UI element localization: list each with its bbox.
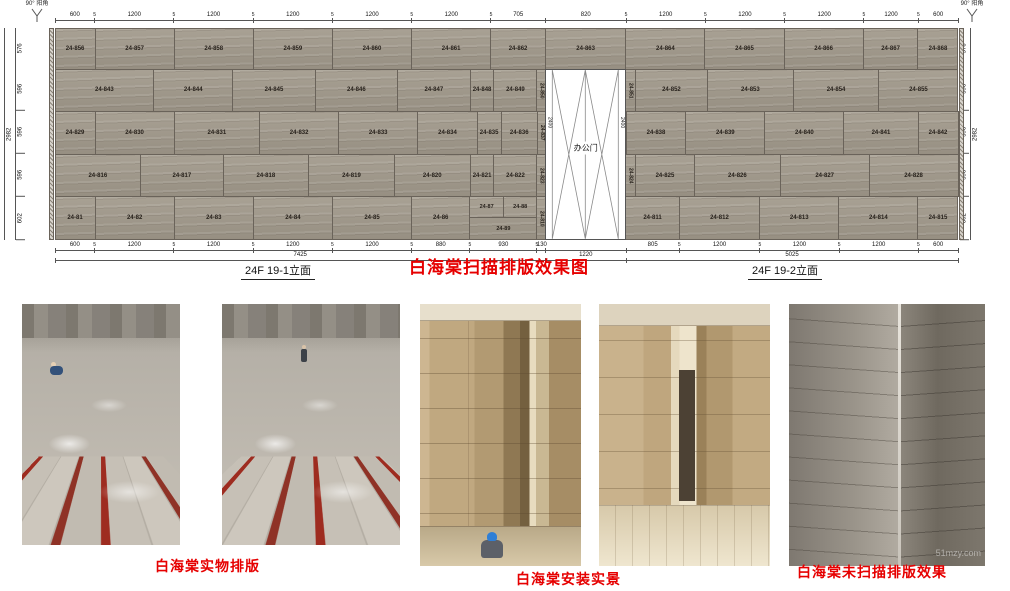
door-frame-icon xyxy=(546,70,625,239)
stone-panel: 24-867 xyxy=(863,28,919,70)
stone-panel: 24-846 xyxy=(315,69,398,113)
dimension-label: 1200 xyxy=(95,11,174,20)
stone-panel: 24-811 xyxy=(625,196,679,240)
stone-panel: 24-860 xyxy=(332,28,412,70)
top-dim-row: 6005120051200512005120051200570582051200… xyxy=(55,11,958,21)
dimension-label xyxy=(545,241,626,250)
dimension-label: 1200 xyxy=(785,11,864,20)
stone-panel: 24-840 xyxy=(764,111,844,155)
dimension-label: 880 xyxy=(412,241,470,250)
stone-panel: 24-819 xyxy=(308,154,395,198)
stone-panel: 24-817 xyxy=(140,154,223,198)
stone-panel: 24-832 xyxy=(259,111,339,155)
dimension-label: 1200 xyxy=(174,11,253,20)
caption-unscanned-effect: 白海棠未扫描排版效果 xyxy=(797,562,947,582)
photo-install-corridor-2 xyxy=(599,304,770,566)
stone-panel: 24-81 xyxy=(55,196,96,240)
page-title: 白海棠扫描排版效果图 xyxy=(409,253,589,278)
stone-panel: 24-848 xyxy=(470,69,495,113)
stone-panel: 24-842 xyxy=(918,111,959,155)
stone-panel: 24-857 xyxy=(95,28,175,70)
stone-panel: 24-865 xyxy=(704,28,784,70)
stone-panel: 24-854 xyxy=(793,69,880,113)
stone-panel: 24-813 xyxy=(759,196,839,240)
ceiling xyxy=(420,304,581,321)
floor-glare xyxy=(22,304,180,545)
stone-panel: 24-843 xyxy=(55,69,155,113)
dimension-label: 596 xyxy=(16,154,25,197)
stone-panel: 24-831 xyxy=(174,111,261,155)
dimension-label: 1200 xyxy=(332,11,411,20)
stone-panel: 24-839 xyxy=(685,111,765,155)
photo-unscanned-corner-wall: 51mzy.com xyxy=(789,304,985,566)
corner-return-hatch-right xyxy=(959,28,964,240)
dimension-label: 1200 xyxy=(705,11,784,20)
dimension-label: 1200 xyxy=(626,11,705,20)
stone-panel: 24-822 xyxy=(493,154,537,198)
stone-panel: 24-816 xyxy=(55,154,142,198)
corner-mark-left: 90° 阳角 xyxy=(15,1,59,22)
dimension-label: 600 xyxy=(55,241,95,250)
dimension-label: 1200 xyxy=(332,241,411,250)
stone-panel: 24-82 xyxy=(95,196,175,240)
layout-sheet: 90° 阳角 90° 阳角 60051200512005120051200512… xyxy=(0,0,1010,591)
stone-panel: 24-833 xyxy=(338,111,418,155)
floor-glare xyxy=(222,304,400,545)
worker-figure xyxy=(300,345,308,363)
corridor-end-door xyxy=(679,370,694,501)
dimension-label: 1200 xyxy=(839,241,918,250)
panel-row: 24-81624-81724-81824-81924-82024-82124-8… xyxy=(55,154,958,197)
dimension-label: 930 xyxy=(470,241,537,250)
corner-symbol-icon xyxy=(30,8,44,22)
photo-install-corridor-1 xyxy=(420,304,581,566)
stone-panel: 24-828 xyxy=(869,154,959,198)
stone-panel: 24-83 xyxy=(174,196,254,240)
stone-panel: 24-841 xyxy=(843,111,918,155)
stone-panel: 24-834 xyxy=(417,111,478,155)
dimension-label: 1200 xyxy=(253,241,332,250)
stone-panel: 24-835 xyxy=(477,111,502,155)
door-height-dim: 2400 xyxy=(546,117,552,128)
stone-panel: 24-855 xyxy=(878,69,958,113)
dimension-label: 1200 xyxy=(95,241,174,250)
elevation-label-left: 24F 19-1立面 xyxy=(241,262,315,280)
stone-panel: 24-866 xyxy=(784,28,864,70)
stone-panel: 24-852 xyxy=(635,69,708,113)
stone-panel: 24-84 xyxy=(253,196,333,240)
stone-panel: 24-856 xyxy=(55,28,96,70)
panel-rows: 24-85624-85724-85824-85924-86024-86124-8… xyxy=(55,28,958,240)
stone-panel: 24-826 xyxy=(694,154,781,198)
stone-panel: 24-838 xyxy=(626,111,687,155)
stone-panel: 24-86 xyxy=(411,196,470,240)
side-dims-left: 576596596596602 xyxy=(15,28,25,240)
dimension-label: 820 xyxy=(545,11,626,20)
caption-physical-layout: 白海棠实物排版 xyxy=(155,556,260,576)
stone-wall-right-plane xyxy=(899,304,985,566)
stone-panel: 24-847 xyxy=(397,69,471,113)
ceiling xyxy=(599,304,770,326)
corner-mark-label: 90° 阳角 xyxy=(961,1,984,7)
floor xyxy=(599,505,770,566)
stone-panel: 24-814 xyxy=(838,196,918,240)
elevation-drawing: 24-85624-85724-85824-85924-86024-86124-8… xyxy=(55,28,958,240)
corner-mark-label: 90° 阳角 xyxy=(26,1,49,7)
stone-panel: 24-821 xyxy=(470,154,495,198)
dimension-label: 1200 xyxy=(412,11,491,20)
stone-panel: 24-85 xyxy=(332,196,412,240)
dimension-label: 596 xyxy=(16,111,25,154)
stone-panel: 24-829 xyxy=(55,111,96,155)
panel-row: 24-85624-85724-85824-85924-86024-86124-8… xyxy=(55,28,958,69)
stone-panel: 24-820 xyxy=(394,154,471,198)
stone-panel: 24-844 xyxy=(153,69,233,113)
dimension-label: 1200 xyxy=(174,241,253,250)
stone-panel: 24-861 xyxy=(411,28,491,70)
dimension-label: 600 xyxy=(918,11,958,20)
stone-panel-split: 24-8724-8824-89 xyxy=(469,196,537,240)
dimension-label: 576 xyxy=(16,28,25,68)
dimension-label: 1200 xyxy=(679,241,760,250)
dimension-label: 1200 xyxy=(760,241,839,250)
stone-panel: 24-845 xyxy=(232,69,315,113)
stone-panel: 24-830 xyxy=(95,111,175,155)
dimension-label: 1200 xyxy=(253,11,332,20)
watermark: 51mzy.com xyxy=(936,548,981,558)
office-door: 2400 2400 办公门 xyxy=(545,69,626,240)
bottom-dim-row: 6005120051200512005120058805930513080551… xyxy=(55,241,958,251)
stone-panel: 24-849 xyxy=(493,69,537,113)
caption-install-scene: 白海棠安装实景 xyxy=(516,569,621,589)
photo-factory-layout-1 xyxy=(22,304,180,545)
panel-row: 24-8124-8224-8324-8424-8524-8624-8724-88… xyxy=(55,197,958,240)
stone-panel: 24-827 xyxy=(780,154,870,198)
elevation-label-right: 24F 19-2立面 xyxy=(748,262,822,280)
stone-panel: 24-818 xyxy=(223,154,310,198)
dimension-label: 600 xyxy=(918,241,958,250)
stone-panel: 24-825 xyxy=(635,154,695,198)
stone-panel: 24-812 xyxy=(679,196,760,240)
panel-row: 24-84324-84424-84524-84624-84724-84824-8… xyxy=(55,69,958,112)
corner-edge-highlight xyxy=(898,304,901,566)
door-height-dim: 2400 xyxy=(619,117,625,128)
stone-panel: 24-858 xyxy=(174,28,254,70)
dimension-label: 5025 xyxy=(626,251,958,260)
stone-panel: 24-853 xyxy=(707,69,794,113)
dimension-label: 1200 xyxy=(864,11,919,20)
dimension-label: 600 xyxy=(55,11,95,20)
door-label: 办公门 xyxy=(574,141,598,154)
stone-panel: 24-863 xyxy=(545,28,626,70)
corner-return-hatch-left xyxy=(49,28,54,240)
side-total-right: 2982 xyxy=(970,28,980,240)
stone-panel: 24-836 xyxy=(501,111,538,155)
dimension-label: 805 xyxy=(626,241,679,250)
dimension-label: 602 xyxy=(16,197,25,240)
dimension-label: 705 xyxy=(491,11,546,20)
worker-figure xyxy=(481,532,503,558)
stone-panel: 24-859 xyxy=(253,28,333,70)
dimension-label: 596 xyxy=(16,68,25,111)
worker-figure xyxy=(50,362,64,376)
stone-panel: 24-864 xyxy=(625,28,705,70)
corner-symbol-icon xyxy=(965,8,979,22)
stone-panel: 24-868 xyxy=(917,28,958,70)
stone-wall-left-plane xyxy=(789,304,901,566)
photo-factory-layout-2 xyxy=(222,304,400,545)
stone-panel: 24-815 xyxy=(917,196,958,240)
panel-row: 24-82924-83024-83124-83224-83324-83424-8… xyxy=(55,112,958,155)
side-total-left: 2982 xyxy=(4,28,14,240)
stone-panel: 24-862 xyxy=(490,28,546,70)
